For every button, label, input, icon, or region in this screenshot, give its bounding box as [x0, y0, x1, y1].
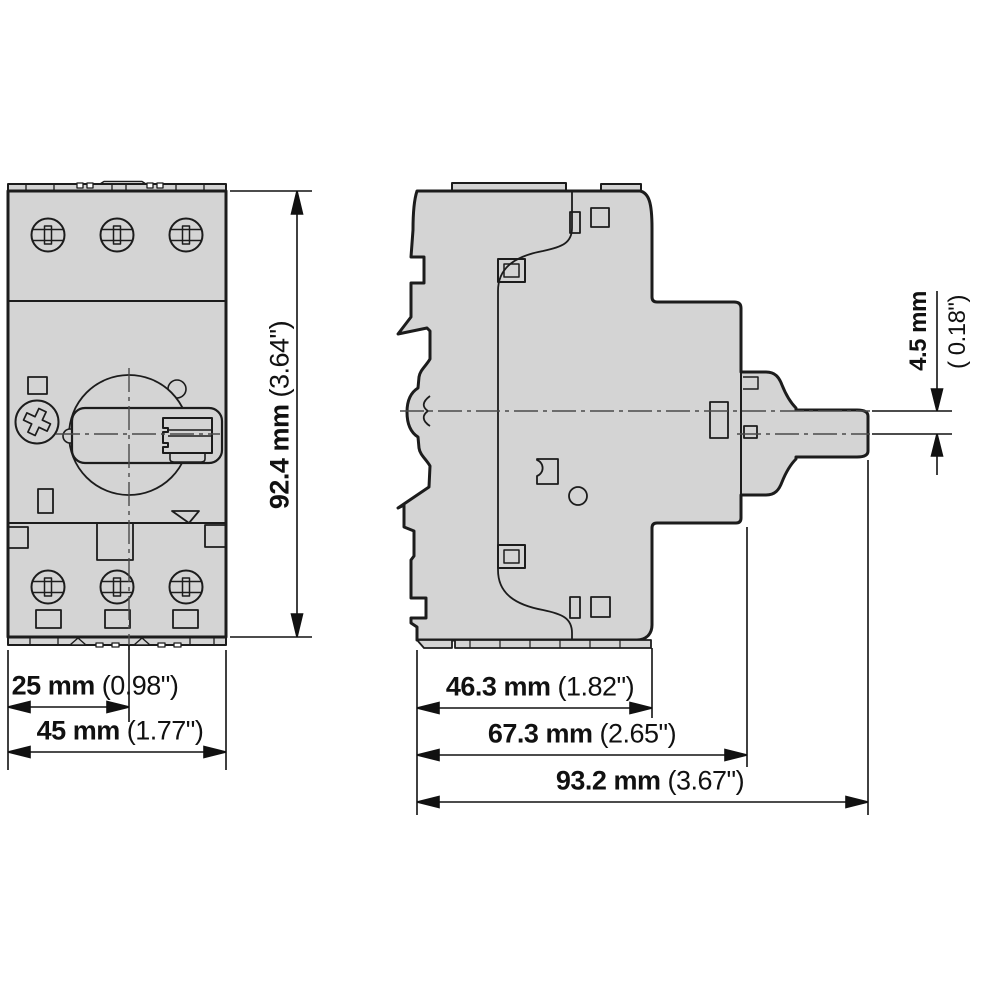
front-width-to-center-mm: 25 mm [12, 671, 95, 701]
handle-axis-offset-inch: ( 0.18") [944, 295, 971, 369]
front-width-to-center-inch: (0.98") [102, 671, 179, 701]
arrow-up-icon [292, 191, 303, 214]
arrow-left-icon [417, 703, 439, 714]
arrow-right-icon [204, 747, 226, 758]
arrow-right-icon [630, 703, 652, 714]
side-depth-body-inch: (1.82") [557, 672, 634, 702]
arrow-left-icon [417, 797, 439, 808]
arrow-left-icon [8, 747, 30, 758]
arrow-down-icon [932, 389, 943, 411]
arrow-left-icon [417, 750, 439, 761]
front-height-label: 92.4 mm(3.64") [265, 321, 296, 509]
front-width-to-center-label: 25 mm(0.98") [12, 671, 179, 702]
side-depth-body-mm: 46.3 mm [446, 672, 551, 702]
front-height-inch: (3.64") [265, 321, 295, 398]
side-depth-with-pad-mm: 67.3 mm [488, 719, 593, 749]
front-width-mm: 45 mm [37, 716, 120, 746]
side-depth-total-label: 93.2 mm(3.67") [556, 766, 744, 797]
side-depth-total-mm: 93.2 mm [556, 766, 661, 796]
front-height-mm: 92.4 mm [265, 405, 295, 510]
side-view [398, 183, 870, 648]
arrow-left-icon [8, 702, 30, 713]
drawing-sheet [0, 0, 1000, 1000]
handle-axis-offset-mm-label: 4.5 mm [905, 291, 933, 371]
front-view [8, 182, 226, 651]
side-depth-body-label: 46.3 mm(1.82") [446, 672, 634, 703]
arrow-up-icon [932, 434, 943, 456]
side-bottom-strip [417, 640, 651, 648]
side-depth-with-pad-inch: (2.65") [599, 719, 676, 749]
arrow-right-icon [846, 797, 868, 808]
dimension-drawing: 92.4 mm(3.64") 25 mm(0.98") 45 mm(1.77")… [0, 0, 1000, 1000]
side-depth-total-inch: (3.67") [667, 766, 744, 796]
arrow-right-icon [107, 702, 129, 713]
handle-axis-offset-mm: 4.5 mm [905, 291, 932, 371]
front-width-inch: (1.77") [127, 716, 204, 746]
handle-axis-offset-inch-label: ( 0.18") [944, 295, 972, 369]
side-depth-with-pad-label: 67.3 mm(2.65") [488, 719, 676, 750]
arrow-down-icon [292, 614, 303, 637]
arrow-right-icon [725, 750, 747, 761]
adjustment-screw-icon [16, 401, 59, 444]
front-width-label: 45 mm(1.77") [37, 716, 204, 747]
side-body-outline [398, 191, 868, 640]
